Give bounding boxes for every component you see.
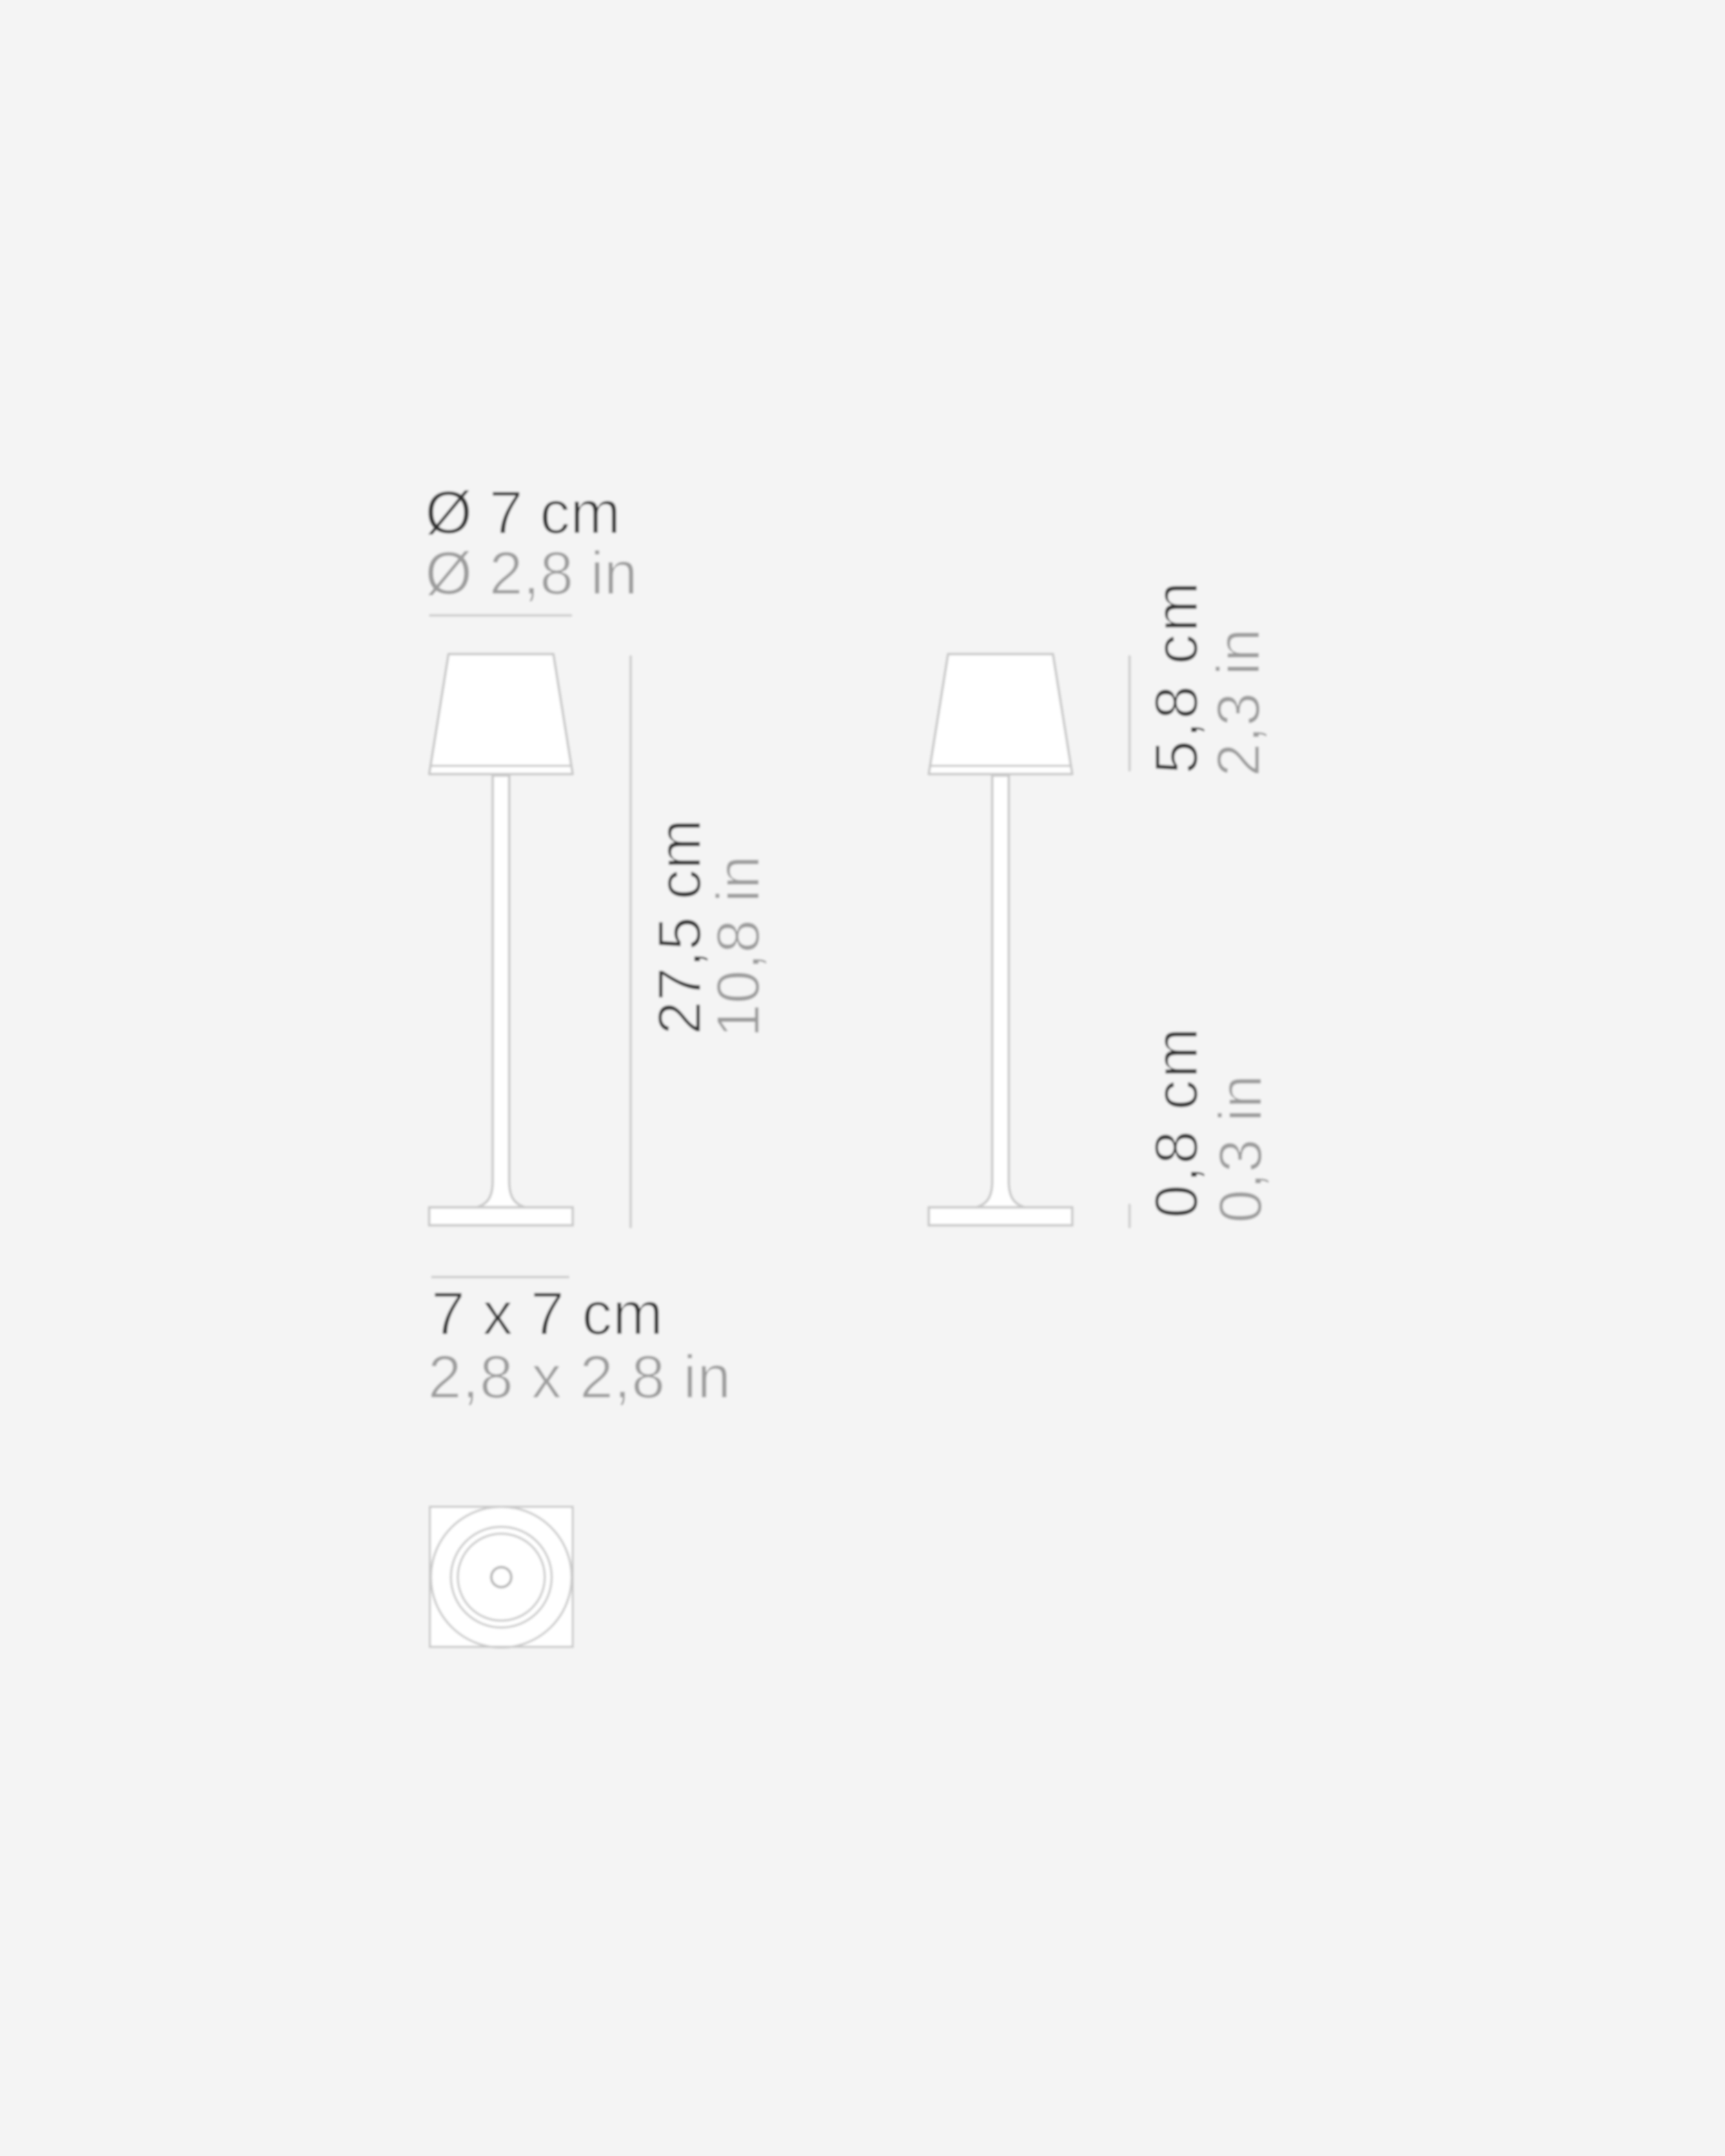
svg-text:10,8 in: 10,8 in xyxy=(704,856,772,1038)
svg-text:Ø 2,8 in: Ø 2,8 in xyxy=(425,539,638,607)
svg-text:0,8 cm: 0,8 cm xyxy=(1142,1026,1210,1218)
svg-text:2,3 in: 2,3 in xyxy=(1204,629,1272,777)
svg-text:2,8 x 2,8 in: 2,8 x 2,8 in xyxy=(428,1343,731,1411)
svg-text:0,3 in: 0,3 in xyxy=(1206,1075,1274,1223)
svg-text:5,8 cm: 5,8 cm xyxy=(1142,580,1210,774)
svg-text:7 x 7 cm: 7 x 7 cm xyxy=(431,1279,664,1347)
svg-text:Ø 7 cm: Ø 7 cm xyxy=(425,478,621,546)
